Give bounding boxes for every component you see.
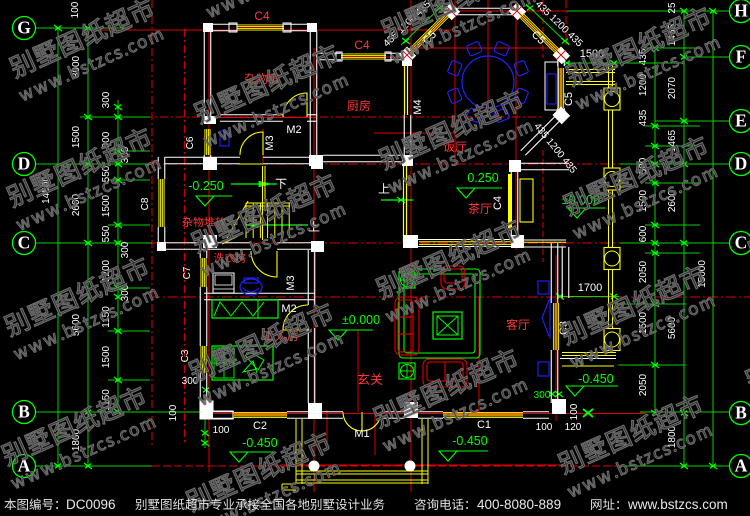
svg-text:100: 100 (168, 404, 179, 421)
svg-text:-0.450: -0.450 (452, 434, 487, 448)
svg-text:D: D (18, 154, 31, 174)
svg-text:C5: C5 (563, 92, 575, 106)
svg-text:400-8080-889: 400-8080-889 (477, 497, 561, 512)
svg-text:C8: C8 (140, 197, 151, 210)
svg-text:M3: M3 (285, 275, 297, 290)
svg-text:2070: 2070 (667, 76, 678, 99)
svg-text:C3: C3 (180, 349, 191, 362)
svg-text:2050: 2050 (638, 260, 649, 283)
svg-text:100: 100 (569, 403, 580, 420)
svg-text:600: 600 (638, 225, 649, 242)
svg-text:A: A (735, 456, 748, 476)
svg-text:E: E (735, 111, 747, 131)
svg-text:D: D (735, 154, 748, 174)
svg-text:C1: C1 (477, 419, 491, 431)
svg-text:F: F (736, 47, 747, 67)
svg-text:-0.450: -0.450 (242, 436, 277, 450)
svg-text:C4: C4 (354, 38, 370, 52)
svg-text:25: 25 (667, 2, 678, 14)
svg-text:2050: 2050 (638, 373, 649, 396)
svg-text:100: 100 (70, 1, 81, 18)
svg-text:300: 300 (120, 241, 131, 258)
svg-text:C2: C2 (253, 420, 267, 432)
svg-text:C7: C7 (182, 266, 193, 279)
svg-text:120: 120 (565, 422, 582, 433)
svg-text:550: 550 (101, 225, 112, 242)
svg-text:M2: M2 (286, 124, 301, 136)
svg-text:1500: 1500 (71, 125, 82, 148)
svg-text:C6: C6 (185, 136, 196, 149)
svg-text:C4: C4 (254, 9, 270, 23)
svg-text:C: C (735, 233, 748, 253)
svg-text:G: G (17, 18, 31, 38)
svg-text:100: 100 (213, 425, 230, 436)
svg-text:B: B (735, 403, 747, 423)
svg-text:H: H (734, 1, 748, 21)
svg-text:M2: M2 (281, 303, 296, 315)
svg-text:0.250: 0.250 (467, 171, 498, 185)
svg-text:1500: 1500 (101, 345, 112, 368)
svg-text:DC0096: DC0096 (66, 497, 116, 512)
svg-text:435: 435 (638, 109, 649, 126)
svg-text:M3: M3 (264, 135, 276, 150)
svg-text:www.bstzcs.com: www.bstzcs.com (627, 497, 728, 512)
svg-text:300: 300 (101, 91, 112, 108)
svg-text:B: B (18, 402, 30, 422)
svg-text:100: 100 (536, 422, 553, 433)
svg-text:M4: M4 (412, 99, 424, 114)
svg-text:1700: 1700 (578, 282, 602, 294)
svg-text:-0.450: -0.450 (578, 372, 613, 386)
svg-text:1500: 1500 (101, 194, 112, 217)
svg-text:C: C (18, 233, 31, 253)
svg-text:-0.250: -0.250 (188, 179, 223, 193)
svg-text:C4: C4 (492, 196, 504, 210)
svg-text:M1: M1 (354, 428, 369, 440)
svg-text:±0.000: ±0.000 (342, 313, 380, 327)
